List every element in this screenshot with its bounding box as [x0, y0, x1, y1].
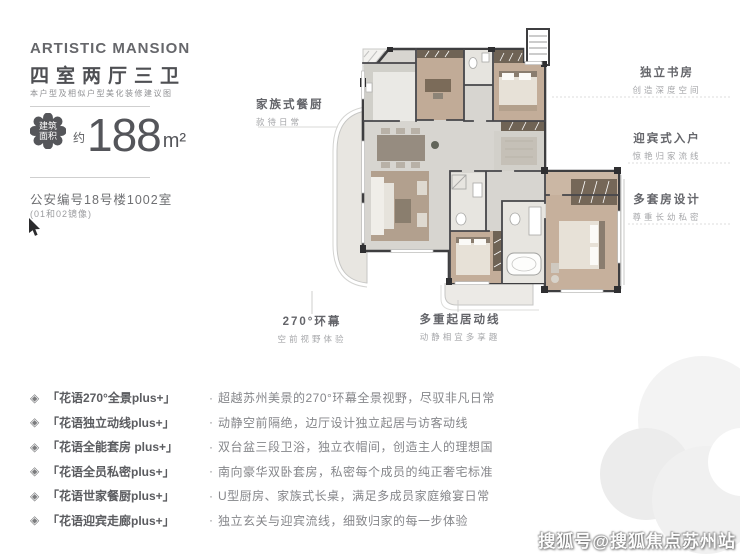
decor-circles-icon	[600, 356, 740, 554]
annotation-living-lines: 多重起居动线 动静相宜多享趣	[412, 315, 508, 341]
master-suite	[546, 172, 618, 290]
cursor-arrow-icon	[29, 218, 43, 237]
bedroom-south	[450, 231, 502, 283]
poster-canvas: ARTISTIC MANSION 四室两厅三卫 本户型及相似户型美化装修建议图 …	[0, 0, 740, 555]
feature-name: 「花语270°全景plus+」	[47, 389, 204, 406]
diamond-bullet-icon: ◈	[30, 440, 47, 454]
feature-list: ◈ 「花语270°全景plus+」 · 超越苏州美景的270°环幕全景视野，尽驭…	[30, 389, 500, 536]
area-block: 建筑面积 约 188 m²	[30, 113, 186, 155]
feature-item: ◈ 「花语迎宾走廊plus+」 · 独立玄关与迎宾流线，细致归家的每一步体验	[30, 512, 500, 529]
feature-name: 「花语全能套房 plus+」	[47, 438, 204, 455]
floor-plan-drawing	[333, 29, 624, 310]
feature-desc: 超越苏州美景的270°环幕全景视野，尽驭非凡日常	[218, 389, 495, 406]
annotation-title: 独立书房	[604, 68, 730, 80]
area-badge-label: 建筑面积	[38, 121, 58, 141]
feature-item: ◈ 「花语独立动线plus+」 · 动静空前隔绝，边厅设计独立起居与访客动线	[30, 414, 500, 431]
feature-desc: 独立玄关与迎宾流线，细致归家的每一步体验	[218, 512, 468, 529]
brand-title: ARTISTIC MANSION	[30, 40, 190, 57]
feature-separator: ·	[204, 489, 218, 503]
area-badge: 建筑面积	[30, 113, 66, 149]
annotation-title: 迎宾式入户	[604, 134, 730, 146]
annotation-sub: 动静相宜多享趣	[412, 333, 508, 342]
feature-name: 「花语全员私密plus+」	[47, 463, 204, 480]
feature-separator: ·	[204, 415, 218, 429]
diamond-bullet-icon: ◈	[30, 464, 47, 478]
bathroom-master	[502, 201, 545, 283]
feature-item: ◈ 「花语世家餐厨plus+」 · U型厨房、家族式长桌，满足多成员家庭飨宴日常	[30, 487, 500, 504]
annotation-multi-suite: 多套房设计 尊重长幼私密	[604, 195, 730, 221]
feature-desc: 动静空前隔绝，边厅设计独立起居与访客动线	[218, 414, 468, 431]
annotation-sub: 尊重长幼私密	[604, 213, 730, 222]
powder-room	[465, 50, 493, 85]
annotation-sub: 款待日常	[256, 118, 324, 127]
layout-title: 四室两厅三卫	[30, 61, 186, 88]
feature-item: ◈ 「花语全能套房 plus+」 · 双台盆三段卫浴，独立衣帽间，创造主人的理想…	[30, 438, 500, 455]
annotation-sub: 创造深度空间	[604, 86, 730, 95]
diamond-bullet-icon: ◈	[30, 391, 47, 405]
police-number: 公安编号18号楼1002室	[30, 189, 172, 208]
annotation-panorama: 270°环幕 空前视野体验	[272, 317, 352, 343]
diamond-bullet-icon: ◈	[30, 489, 47, 503]
feature-desc: 双台盆三段卫浴，独立衣帽间，创造主人的理想国	[218, 438, 493, 455]
annotation-entry: 迎宾式入户 惊艳归家流线	[604, 134, 730, 160]
disclaimer-text: 本户型及相似户型美化装修建议图	[30, 88, 173, 99]
area-unit: m²	[163, 130, 186, 153]
divider	[30, 177, 150, 178]
study-room	[417, 50, 464, 120]
annotation-study: 独立书房 创造深度空间	[604, 68, 730, 94]
diamond-bullet-icon: ◈	[30, 415, 47, 429]
feature-desc: U型厨房、家族式长桌，满足多成员家庭飨宴日常	[218, 487, 490, 504]
annotation-family-kitchen: 家族式餐厨 款待日常	[256, 100, 324, 126]
feature-separator: ·	[204, 391, 218, 405]
annotation-title: 多套房设计	[604, 195, 730, 207]
watermark: 搜狐号@搜狐焦点苏州站	[538, 527, 736, 552]
divider	[30, 106, 150, 107]
annotation-title: 家族式餐厨	[256, 100, 324, 112]
feature-separator: ·	[204, 440, 218, 454]
feature-separator: ·	[204, 513, 218, 527]
annotation-sub: 空前视野体验	[272, 335, 352, 344]
stair-shaft	[527, 29, 549, 65]
area-approx: 约	[73, 129, 85, 146]
feature-item: ◈ 「花语全员私密plus+」 · 南向豪华双卧套房，私密每个成员的纯正奢宅标准	[30, 463, 500, 480]
feature-desc: 南向豪华双卧套房，私密每个成员的纯正奢宅标准	[218, 463, 493, 480]
annotation-title: 多重起居动线	[412, 315, 508, 327]
feature-name: 「花语世家餐厨plus+」	[47, 487, 204, 504]
annotation-title: 270°环幕	[272, 317, 352, 329]
bathroom-middle	[450, 173, 486, 231]
area-value: 188	[87, 115, 161, 155]
kitchen	[364, 63, 416, 121]
diamond-bullet-icon: ◈	[30, 513, 47, 527]
feature-separator: ·	[204, 464, 218, 478]
feature-name: 「花语迎宾走廊plus+」	[47, 512, 204, 529]
annotation-sub: 惊艳归家流线	[604, 152, 730, 161]
feature-item: ◈ 「花语270°全景plus+」 · 超越苏州美景的270°环幕全景视野，尽驭…	[30, 389, 500, 406]
feature-name: 「花语独立动线plus+」	[47, 414, 204, 431]
